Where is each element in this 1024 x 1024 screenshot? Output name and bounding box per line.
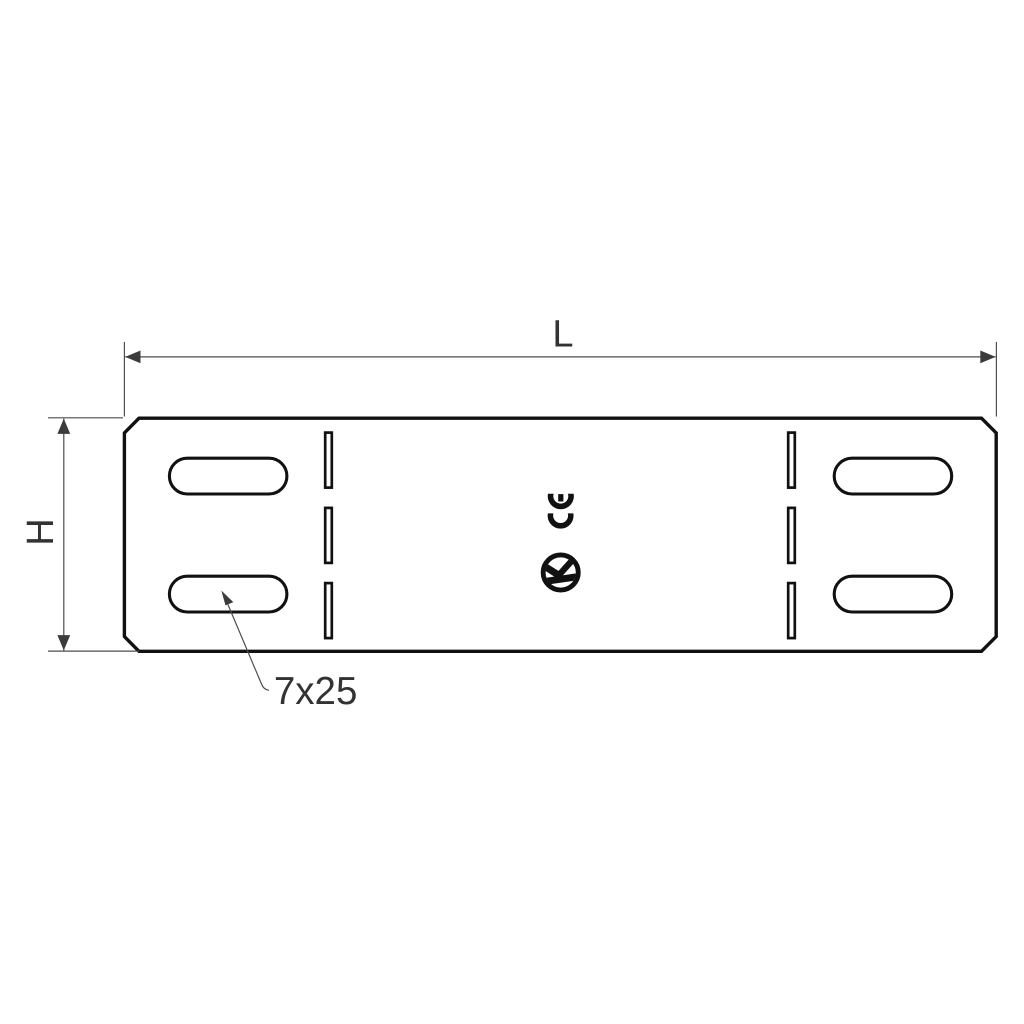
svg-text:H: H xyxy=(20,518,62,545)
svg-text:L: L xyxy=(552,313,573,355)
svg-text:7x25: 7x25 xyxy=(274,670,358,713)
